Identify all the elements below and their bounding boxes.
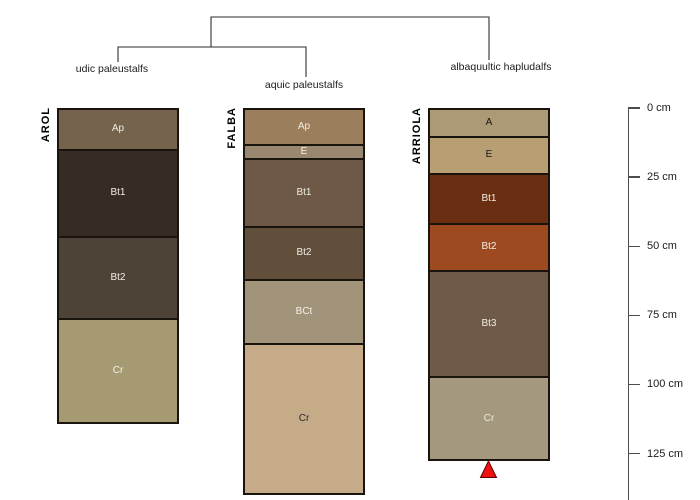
horizon-label: Cr <box>113 366 124 376</box>
horizon-e: E <box>245 146 363 161</box>
depth-tick-label: 0 cm <box>647 102 671 114</box>
depth-tick <box>628 315 640 316</box>
horizon-bt2: Bt2 <box>245 228 363 281</box>
horizon-label: Bt2 <box>110 273 125 283</box>
horizon-label: BCt <box>296 307 313 317</box>
horizon-label: A <box>486 118 493 128</box>
horizon-bt2: Bt2 <box>430 225 548 272</box>
classification-label-udic-paleustalfs: udic paleustalfs <box>76 63 148 75</box>
horizon-label: Bt1 <box>296 188 311 198</box>
profile-name-falba: FALBA <box>226 107 238 149</box>
depth-tick-label: 25 cm <box>647 171 677 183</box>
profile-column-arol: ApBt1Bt2Cr <box>57 108 179 424</box>
horizon-bt1: Bt1 <box>430 175 548 225</box>
dendrogram-root-branch <box>211 17 489 60</box>
profile-column-falba: ApEBt1Bt2BCtCr <box>243 108 365 495</box>
depth-tick-label: 100 cm <box>647 378 683 390</box>
water-table-triangle-icon <box>478 458 500 480</box>
soil-profile-figure: udic paleustalfs aquic paleustalfs albaq… <box>0 0 700 500</box>
horizon-bt2: Bt2 <box>59 238 177 320</box>
horizon-bt1: Bt1 <box>245 160 363 228</box>
horizon-bt3: Bt3 <box>430 272 548 379</box>
horizon-label: Bt2 <box>481 242 496 252</box>
horizon-a: A <box>430 110 548 138</box>
horizon-label: Bt1 <box>481 194 496 204</box>
horizon-e: E <box>430 138 548 175</box>
horizon-bt1: Bt1 <box>59 151 177 238</box>
horizon-cr: Cr <box>245 345 363 493</box>
horizon-label: Cr <box>299 414 310 424</box>
horizon-cr: Cr <box>430 378 548 459</box>
horizon-label: Bt2 <box>296 248 311 258</box>
horizon-label: Cr <box>484 414 495 424</box>
depth-tick <box>628 384 640 385</box>
horizon-label: Ap <box>112 124 124 134</box>
horizon-ap: Ap <box>245 110 363 146</box>
profile-name-arol: AROL <box>40 107 52 142</box>
depth-tick <box>628 246 640 247</box>
depth-tick <box>628 176 640 177</box>
horizon-label: E <box>486 150 493 160</box>
depth-tick-label: 50 cm <box>647 240 677 252</box>
classification-label-aquic-paleustalfs: aquic paleustalfs <box>265 79 343 91</box>
profile-name-arriola: ARRIOLA <box>411 107 423 164</box>
horizon-label: Ap <box>298 122 310 132</box>
profile-column-arriola: AEBt1Bt2Bt3Cr <box>428 108 550 461</box>
depth-tick-label: 75 cm <box>647 309 677 321</box>
classification-label-albaquultic-hapludalfs: albaquultic hapludalfs <box>451 61 552 73</box>
dendrogram <box>0 0 700 100</box>
depth-tick <box>628 453 640 454</box>
horizon-label: Bt3 <box>481 319 496 329</box>
depth-tick <box>628 107 640 108</box>
depth-axis-line <box>628 108 629 500</box>
horizon-label: Bt1 <box>110 188 125 198</box>
depth-tick-label: 125 cm <box>647 448 683 460</box>
horizon-cr: Cr <box>59 320 177 422</box>
horizon-bct: BCt <box>245 281 363 345</box>
horizon-ap: Ap <box>59 110 177 151</box>
horizon-label: E <box>301 147 308 157</box>
